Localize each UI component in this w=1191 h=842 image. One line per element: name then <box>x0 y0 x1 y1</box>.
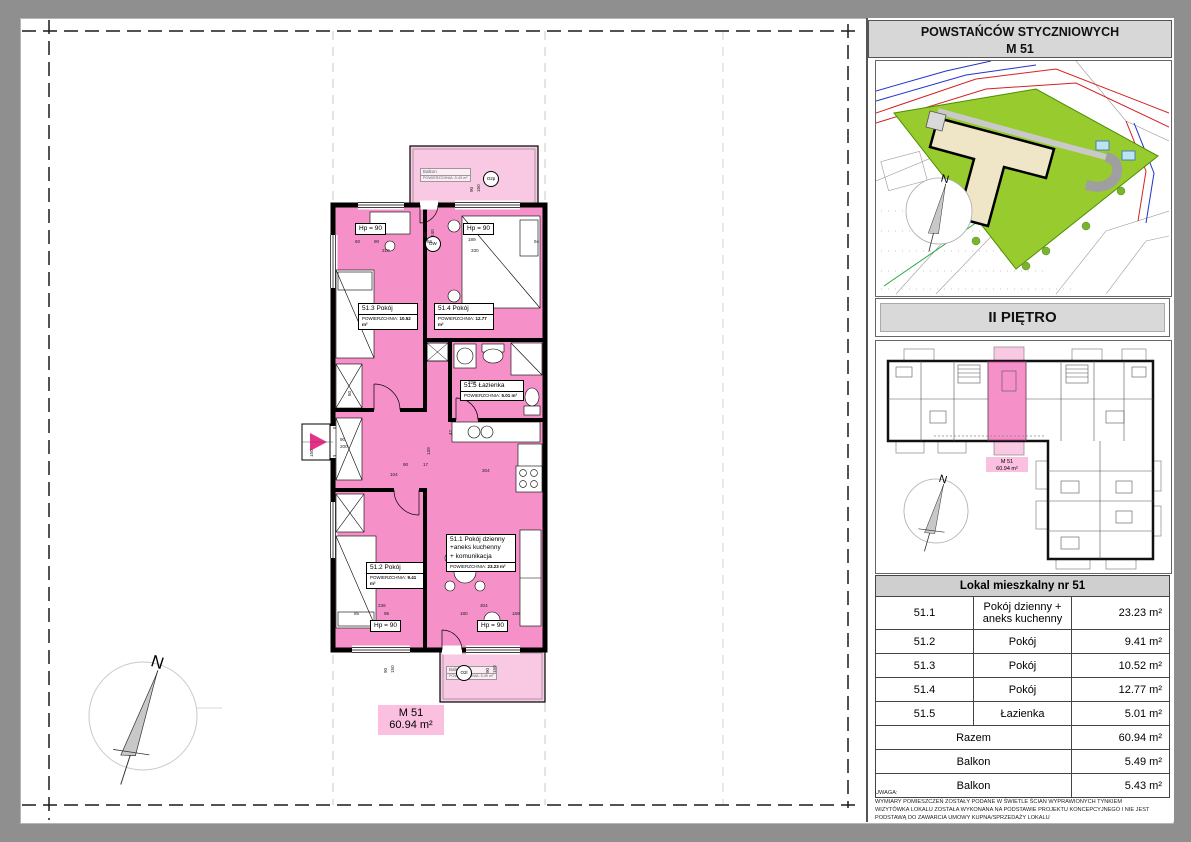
cell-area: 12.77 m² <box>1072 678 1170 702</box>
sheet: N M 51 60.94 m² 51.3 PokójPOWIERZCHNIA: … <box>0 0 1191 842</box>
cell-name: Pokój <box>974 654 1072 678</box>
areas-table: Lokal mieszkalny nr 51 51.1Pokój dzienny… <box>875 575 1170 798</box>
cell-area: 5.49 m² <box>1072 750 1170 774</box>
project-title: POWSTAŃCÓW STYCZNIOWYCH M 51 <box>868 20 1172 58</box>
cell-label: Balkon <box>876 750 1072 774</box>
cell-area: 23.23 m² <box>1072 597 1170 630</box>
balcony-top <box>410 146 538 207</box>
cell-area: 9.41 m² <box>1072 630 1170 654</box>
floor-overview-svg: M 51 60.94 m² N <box>876 341 1169 571</box>
compass-main: N <box>89 649 222 790</box>
table-row: 51.4Pokój12.77 m² <box>876 678 1170 702</box>
cell-num: 51.1 <box>876 597 974 630</box>
note-line: UWAGA: <box>875 789 1170 797</box>
floorplan-drawing: N <box>22 20 868 820</box>
cell-label: Razem <box>876 726 1072 750</box>
floor-label-box: II PIĘTRO <box>875 298 1170 337</box>
cell-area: 10.52 m² <box>1072 654 1170 678</box>
cell-name: Pokój dzienny + aneks kuchenny <box>974 597 1072 630</box>
cell-name: Pokój <box>974 630 1072 654</box>
site-plan-map: N <box>875 60 1172 297</box>
table-row: 51.5Łazienka5.01 m² <box>876 702 1170 726</box>
table-row: 51.1Pokój dzienny + aneks kuchenny23.23 … <box>876 597 1170 630</box>
note-line: PODSTAWĄ DO ZAWARCIA UMOWY KUPNA/SPRZEDA… <box>875 814 1170 822</box>
table-total-row: Razem60.94 m² <box>876 726 1170 750</box>
compass-n-label: N <box>149 651 167 673</box>
cell-area: 5.01 m² <box>1072 702 1170 726</box>
overview-unit-label: M 51 60.94 m² <box>986 457 1028 472</box>
svg-text:M 51: M 51 <box>1001 459 1013 465</box>
entrance <box>302 424 333 460</box>
vent-shaft <box>427 343 448 361</box>
floor-overview: M 51 60.94 m² N <box>875 340 1172 574</box>
balcony-bottom <box>440 650 545 702</box>
table-total-row: Balkon5.49 m² <box>876 750 1170 774</box>
note-line: WIZYTÓWKA LOKALU ZOSTAŁA WYKONANA NA POD… <box>875 806 1170 814</box>
info-panel: POWSTAŃCÓW STYCZNIOWYCH M 51 <box>866 18 1174 822</box>
table-row: 51.2Pokój9.41 m² <box>876 630 1170 654</box>
cell-num: 51.4 <box>876 678 974 702</box>
table-title: Lokal mieszkalny nr 51 <box>876 576 1170 597</box>
cell-name: Łazienka <box>974 702 1072 726</box>
disclaimer-note: UWAGA:WYMIARY POMIESZCZEŃ ZOSTAŁY PODANE… <box>875 789 1170 822</box>
note-line: WYMIARY POMIESZCZEŃ ZOSTAŁY PODANE W ŚWI… <box>875 798 1170 806</box>
cell-area: 60.94 m² <box>1072 726 1170 750</box>
cell-name: Pokój <box>974 678 1072 702</box>
areas-table-box: Lokal mieszkalny nr 51 51.1Pokój dzienny… <box>875 575 1170 798</box>
cell-num: 51.2 <box>876 630 974 654</box>
cell-num: 51.3 <box>876 654 974 678</box>
cell-num: 51.5 <box>876 702 974 726</box>
highlighted-unit <box>988 362 1026 440</box>
unit-number: M 51 <box>869 41 1171 58</box>
site-plan-svg: N <box>876 61 1169 294</box>
floor-label: II PIĘTRO <box>880 303 1165 332</box>
table-row: 51.3Pokój10.52 m² <box>876 654 1170 678</box>
street-name: POWSTAŃCÓW STYCZNIOWYCH <box>869 24 1171 41</box>
svg-text:60.94 m²: 60.94 m² <box>996 466 1018 472</box>
